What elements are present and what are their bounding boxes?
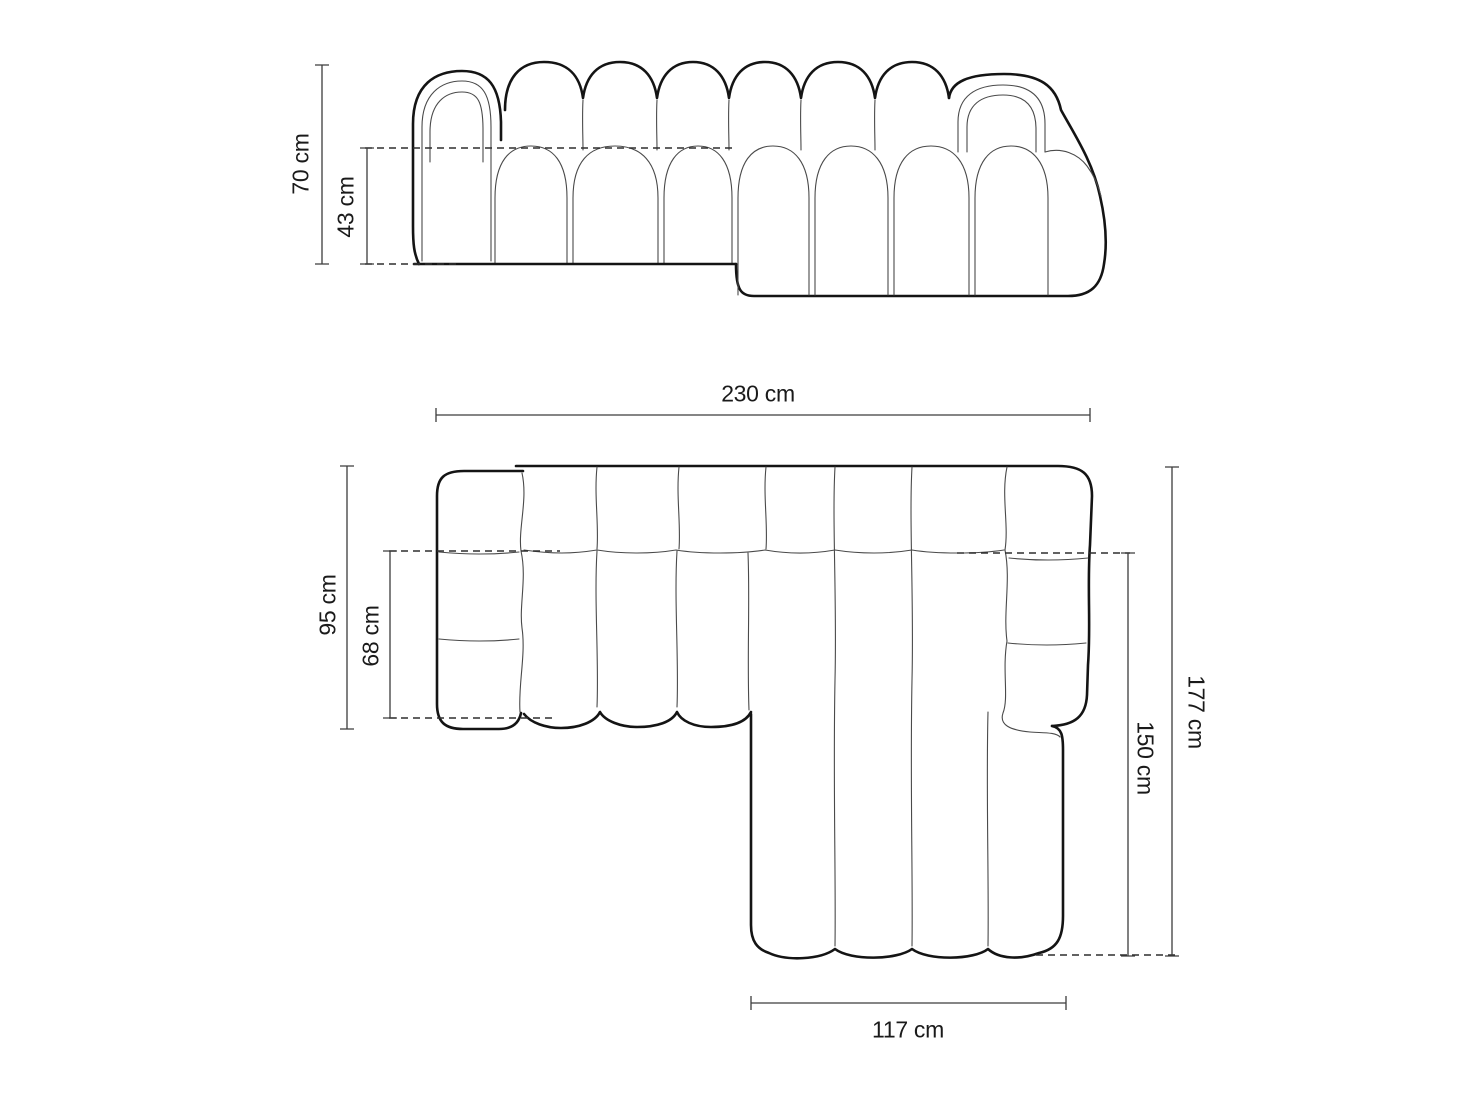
front-seat-cushion bbox=[495, 146, 567, 263]
front-height-dimension-line bbox=[315, 65, 329, 264]
top-chaise-width-label: 117 cm bbox=[872, 1019, 944, 1042]
sofa-dimension-diagram: 70 cm 43 cm 230 cm 95 cm 68 cm 177 cm 15… bbox=[0, 0, 1470, 1103]
top-seat-divider bbox=[676, 551, 677, 707]
front-left-arm-inner-arch-2 bbox=[430, 92, 483, 162]
top-right-arm-divider bbox=[1008, 643, 1086, 645]
diagram-linework bbox=[0, 0, 1470, 1103]
top-width-dimension-line bbox=[436, 408, 1090, 422]
top-left-depth-label: 95 cm bbox=[317, 574, 340, 635]
front-height-label: 70 cm bbox=[290, 133, 313, 194]
front-chaise-cushion bbox=[815, 146, 888, 295]
front-back-cushions-scallop bbox=[505, 62, 949, 110]
top-chaise-left-seam bbox=[748, 553, 749, 710]
top-chaise-outline bbox=[751, 714, 1063, 958]
top-seat-divider bbox=[596, 551, 597, 707]
top-left-arm-seam bbox=[520, 473, 524, 712]
front-chaise-cushion bbox=[894, 146, 969, 295]
top-right-arm-divider bbox=[1009, 558, 1088, 560]
front-seat-cushion bbox=[664, 146, 732, 263]
front-chaise-cushion bbox=[738, 146, 809, 295]
top-chaise-seam bbox=[987, 712, 988, 946]
front-right-arm-inner-arch-2 bbox=[967, 95, 1036, 152]
top-overall-depth-dimension-line bbox=[1165, 467, 1179, 956]
top-seat-front-scallop bbox=[524, 712, 751, 728]
front-chaise-cushion bbox=[975, 146, 1048, 295]
top-left-seat-depth-label: 68 cm bbox=[360, 605, 383, 666]
top-width-label: 230 cm bbox=[721, 383, 795, 406]
top-left-seat-depth-dimension-line bbox=[383, 551, 397, 718]
top-back-divider bbox=[765, 467, 766, 549]
top-left-arm-divider bbox=[439, 552, 519, 554]
dimension-lines bbox=[315, 65, 1180, 1010]
top-overall-depth-label: 177 cm bbox=[1185, 675, 1208, 749]
front-seat-height-dimension-line bbox=[360, 148, 374, 264]
top-left-arm-divider bbox=[439, 639, 519, 641]
front-right-arm-and-chaise-outline bbox=[736, 74, 1106, 296]
top-left-arm-outline bbox=[437, 471, 523, 729]
top-chaise-seam bbox=[911, 467, 912, 946]
top-back-divider bbox=[678, 467, 679, 549]
front-view-drawing bbox=[413, 62, 1106, 296]
front-seat-cushion bbox=[573, 146, 658, 263]
top-right-arm-seam bbox=[1002, 467, 1060, 737]
top-view-drawing bbox=[437, 466, 1092, 958]
top-back-divider bbox=[596, 467, 597, 549]
top-left-depth-dimension-line bbox=[340, 466, 354, 729]
top-back-strip-seam bbox=[524, 550, 1004, 553]
top-chaise-width-dimension-line bbox=[751, 996, 1066, 1010]
top-chaise-seam bbox=[834, 467, 835, 946]
front-seat-height-label: 43 cm bbox=[335, 176, 358, 237]
top-chaise-depth-label: 150 cm bbox=[1134, 721, 1157, 795]
